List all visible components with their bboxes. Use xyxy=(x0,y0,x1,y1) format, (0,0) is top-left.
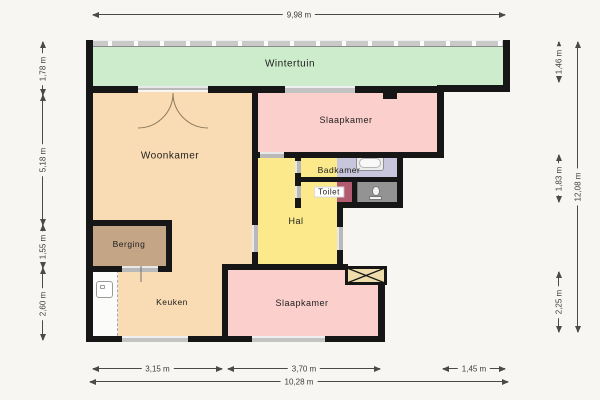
dimension-label: 2,60 m xyxy=(39,288,48,320)
label-keuken: Keuken xyxy=(156,297,188,307)
window xyxy=(122,336,188,342)
dimension-right-3: 2,25 m xyxy=(558,272,559,332)
dimension-label: 9,98 m xyxy=(283,11,315,20)
label-woonkamer: Woonkamer xyxy=(141,151,199,162)
dimension-right-2: 1,83 m xyxy=(558,155,559,202)
dimension-left-4: 2,60 m xyxy=(42,268,43,340)
wall-segment xyxy=(222,264,228,342)
wall-segment xyxy=(188,336,252,342)
wall-segment xyxy=(166,220,172,272)
dimension-bottom-1: 3,15 m xyxy=(93,368,222,369)
wall-segment xyxy=(86,86,138,93)
glass-wall xyxy=(86,40,510,47)
dimension-right-total: 12,08 m xyxy=(577,42,578,332)
dimension-left-2: 5,18 m xyxy=(42,95,43,225)
dimension-label: 12,08 m xyxy=(574,169,583,206)
door xyxy=(122,266,158,272)
french-door-opening xyxy=(138,86,208,90)
dimension-label: 1,83 m xyxy=(555,162,564,194)
wall-segment xyxy=(86,220,172,226)
wall-stub xyxy=(383,86,397,99)
wall-segment xyxy=(437,85,510,92)
label-berging: Berging xyxy=(113,239,146,249)
entrance-door xyxy=(337,227,343,250)
wall-segment xyxy=(252,86,258,225)
window xyxy=(252,336,325,342)
dimension-bottom-2: 3,70 m xyxy=(228,368,380,369)
wall-segment xyxy=(378,283,385,342)
wall-segment xyxy=(86,336,122,342)
dimension-label: 3,70 m xyxy=(288,365,320,374)
wall-segment xyxy=(352,177,357,202)
wall-segment xyxy=(158,266,172,272)
wall-segment xyxy=(337,202,403,208)
dimension-top-total: 9,98 m xyxy=(93,14,505,15)
dimension-label: 3,15 m xyxy=(141,365,173,374)
door xyxy=(295,186,301,198)
dimension-label: 2,25 m xyxy=(555,286,564,318)
label-toilet: Toilet xyxy=(314,187,344,198)
wall-segment xyxy=(437,85,444,158)
door xyxy=(295,161,301,173)
label-badkamer: Badkamer xyxy=(318,165,361,175)
kitchen-counter xyxy=(92,270,118,336)
wall-segment xyxy=(222,264,348,270)
wall-segment xyxy=(325,336,385,342)
dimension-label: 5,18 m xyxy=(39,144,48,176)
dimension-left-1: 1,78 m xyxy=(42,42,43,95)
dimension-label: 1,78 m xyxy=(39,52,48,84)
dimension-right-1: 1,46 m xyxy=(558,42,559,82)
dimension-bottom-total: 10,28 m xyxy=(90,381,508,382)
kitchen-sink-icon xyxy=(96,281,113,298)
wall-segment xyxy=(86,266,122,272)
wall-segment xyxy=(355,86,444,93)
wall-segment xyxy=(208,86,285,93)
dimension-label: 10,28 m xyxy=(281,378,318,387)
window xyxy=(285,86,355,93)
label-slaapkamer-top: Slaapkamer xyxy=(319,115,372,125)
dimension-label: 1,55 m xyxy=(39,230,48,262)
floorplan: Wintertuin Woonkamer Slaapkamer Badkamer… xyxy=(0,0,600,400)
dimension-left-3: 1,55 m xyxy=(42,225,43,268)
wall-segment xyxy=(284,152,444,158)
dimension-bottom-3: 1,45 m xyxy=(443,368,505,369)
wall-segment xyxy=(337,202,343,227)
dimension-label: 1,46 m xyxy=(555,46,564,78)
label-slaapkamer-bottom: Slaapkamer xyxy=(275,298,328,308)
label-hal: Hal xyxy=(288,216,303,226)
label-wintertuin: Wintertuin xyxy=(265,59,315,70)
wall-segment xyxy=(295,177,403,182)
door xyxy=(252,225,258,252)
toilet-bowl-icon xyxy=(372,186,380,196)
dimension-label: 1,45 m xyxy=(458,365,490,374)
door xyxy=(260,152,284,158)
toilet-bowl-icon xyxy=(369,196,382,200)
